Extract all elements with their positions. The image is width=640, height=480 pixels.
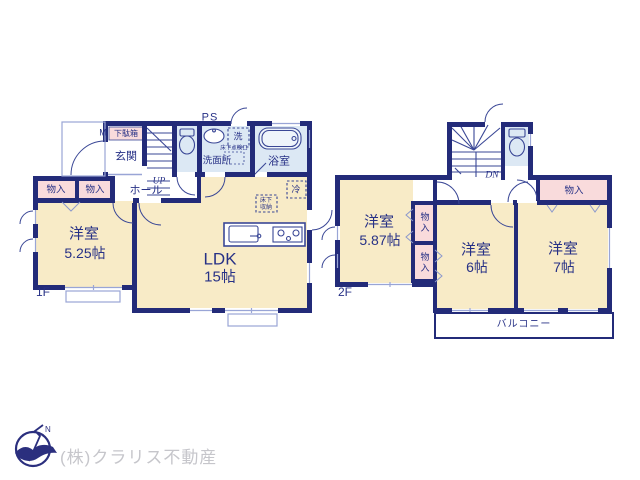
label-underfloor-1: 床下	[260, 198, 272, 204]
label-entrance: 玄関	[115, 152, 137, 163]
label-western-room-6-size: 6帖	[466, 260, 488, 274]
compass-logo: N	[15, 425, 57, 466]
label-shoebox-m: M	[99, 129, 107, 138]
label-ps: PS	[202, 113, 219, 124]
label-closet-top: 物入	[564, 186, 583, 196]
label-storage-b: 物入	[85, 185, 104, 195]
label-closet-a: 物入	[420, 212, 429, 234]
label-dn: DN	[485, 171, 498, 181]
floorplan-canvas: N PS M 下駄箱 玄関 洗 床下点検口 洗面所 浴室 UP ホール 物入 物…	[0, 0, 640, 480]
bathtub-icon	[259, 128, 301, 149]
label-closet-b: 物入	[420, 252, 429, 274]
label-floor1: 1F	[36, 286, 50, 298]
compass-north-label: N	[45, 425, 51, 434]
label-storage-a: 物入	[46, 185, 65, 195]
label-floor2: 2F	[338, 286, 352, 298]
label-underfloor-2: 収納	[260, 205, 272, 211]
label-western-room-6: 洋室	[461, 243, 491, 258]
label-hall: ホール	[130, 186, 163, 197]
label-washer: 洗	[233, 133, 242, 142]
company-name: (株)クラリス不動産	[60, 443, 217, 468]
label-fridge: 冷	[291, 186, 300, 195]
label-washroom: 洗面所	[203, 156, 232, 166]
label-ldk: LDK	[203, 251, 236, 268]
kitchen-counter-icon	[224, 223, 305, 246]
label-bathroom: 浴室	[268, 157, 290, 168]
label-western-room-1f: 洋室	[69, 227, 99, 242]
washbasin-icon	[204, 129, 224, 143]
label-western-room-7-size: 7帖	[553, 260, 575, 274]
label-western-room-7: 洋室	[548, 242, 578, 257]
label-western-room-1f-size: 5.25帖	[64, 246, 105, 260]
label-balcony: バルコニー	[497, 320, 552, 330]
label-western-room-587: 洋室	[364, 215, 394, 230]
label-inspection-port: 床下点検口	[220, 146, 248, 152]
label-shoebox: 下駄箱	[114, 130, 138, 138]
label-ldk-size: 15帖	[204, 270, 236, 285]
label-western-room-587-size: 5.87帖	[359, 233, 400, 247]
